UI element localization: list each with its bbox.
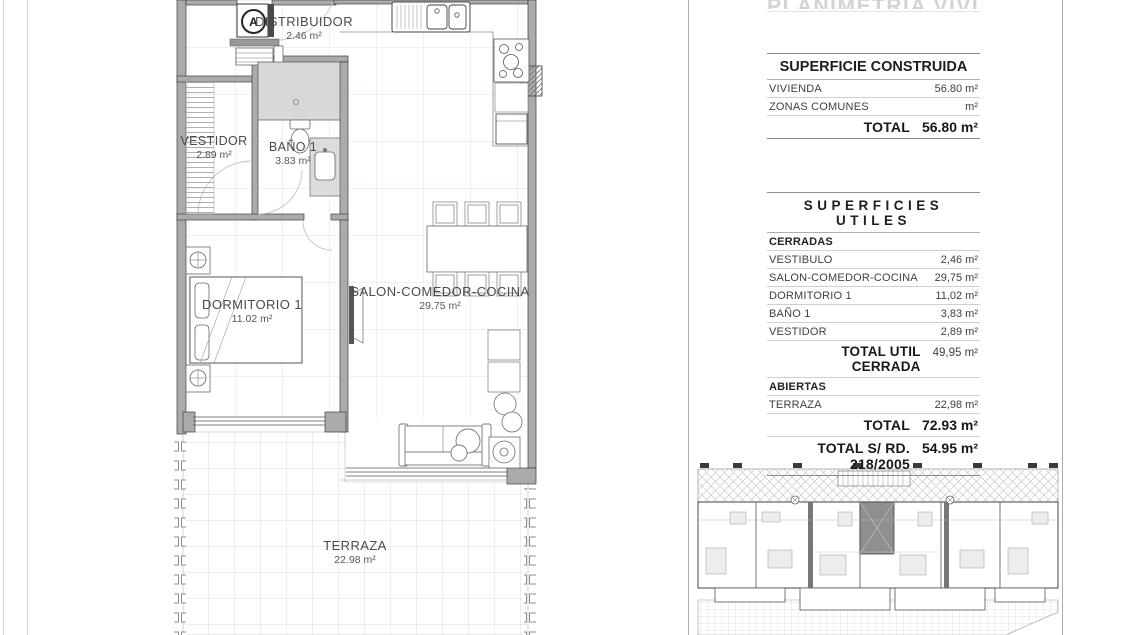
sheet-border-lines xyxy=(4,0,28,635)
bed xyxy=(190,277,302,363)
plan-sheet: A DISTRIBUIDOR 2.46 m² VESTIDOR 2.89 m² … xyxy=(0,0,1130,635)
sofa xyxy=(399,424,491,466)
terrace-railing-right xyxy=(524,488,536,635)
wardrobe-shelves xyxy=(186,82,214,214)
dining-table xyxy=(427,202,527,296)
terrace-railing-left xyxy=(174,438,186,635)
floorplan-drawing xyxy=(0,0,1130,635)
building-key-plan xyxy=(698,463,1058,635)
